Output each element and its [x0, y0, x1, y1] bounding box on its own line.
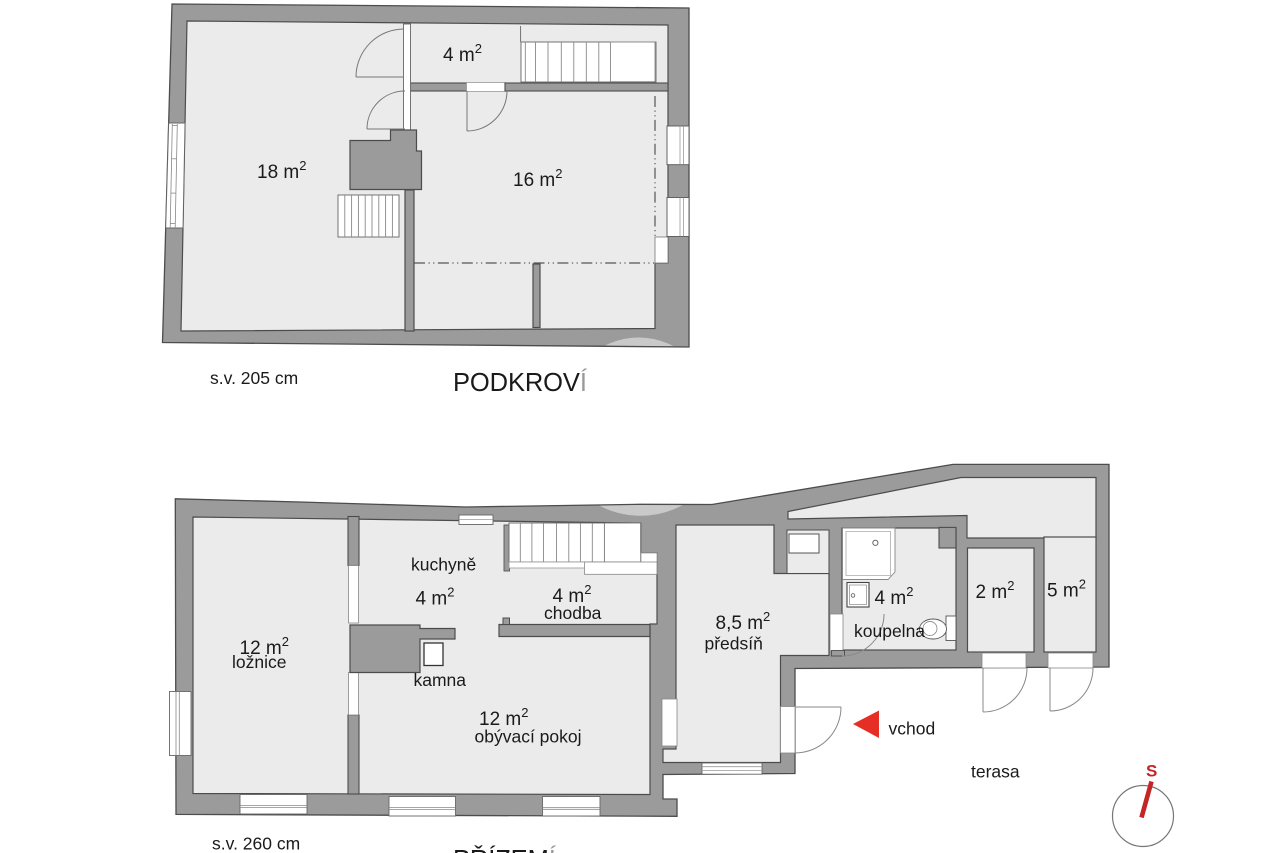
svg-text:terasa: terasa	[971, 762, 1020, 782]
svg-text:PŘÍZEMÍ: PŘÍZEMÍ	[453, 845, 557, 853]
svg-text:předsíň: předsíň	[705, 634, 763, 654]
svg-text:vchod: vchod	[889, 719, 936, 739]
svg-text:s.v. 260 cm: s.v. 260 cm	[212, 834, 300, 853]
svg-text:PODKROVÍ: PODKROVÍ	[453, 368, 588, 397]
svg-text:16 m2: 16 m2	[513, 166, 562, 191]
svg-text:kuchyně: kuchyně	[411, 555, 476, 575]
svg-text:obývací pokoj: obývací pokoj	[475, 727, 582, 747]
svg-text:8,5 m2: 8,5 m2	[716, 609, 771, 634]
svg-text:koupelna: koupelna	[854, 621, 925, 641]
svg-text:kamna: kamna	[414, 670, 467, 690]
svg-text:18 m2: 18 m2	[257, 158, 306, 183]
svg-text:ložnice: ložnice	[232, 652, 286, 672]
svg-text:s.v. 205 cm: s.v. 205 cm	[210, 368, 298, 388]
svg-text:chodba: chodba	[544, 603, 602, 623]
svg-text:S: S	[1146, 762, 1157, 781]
